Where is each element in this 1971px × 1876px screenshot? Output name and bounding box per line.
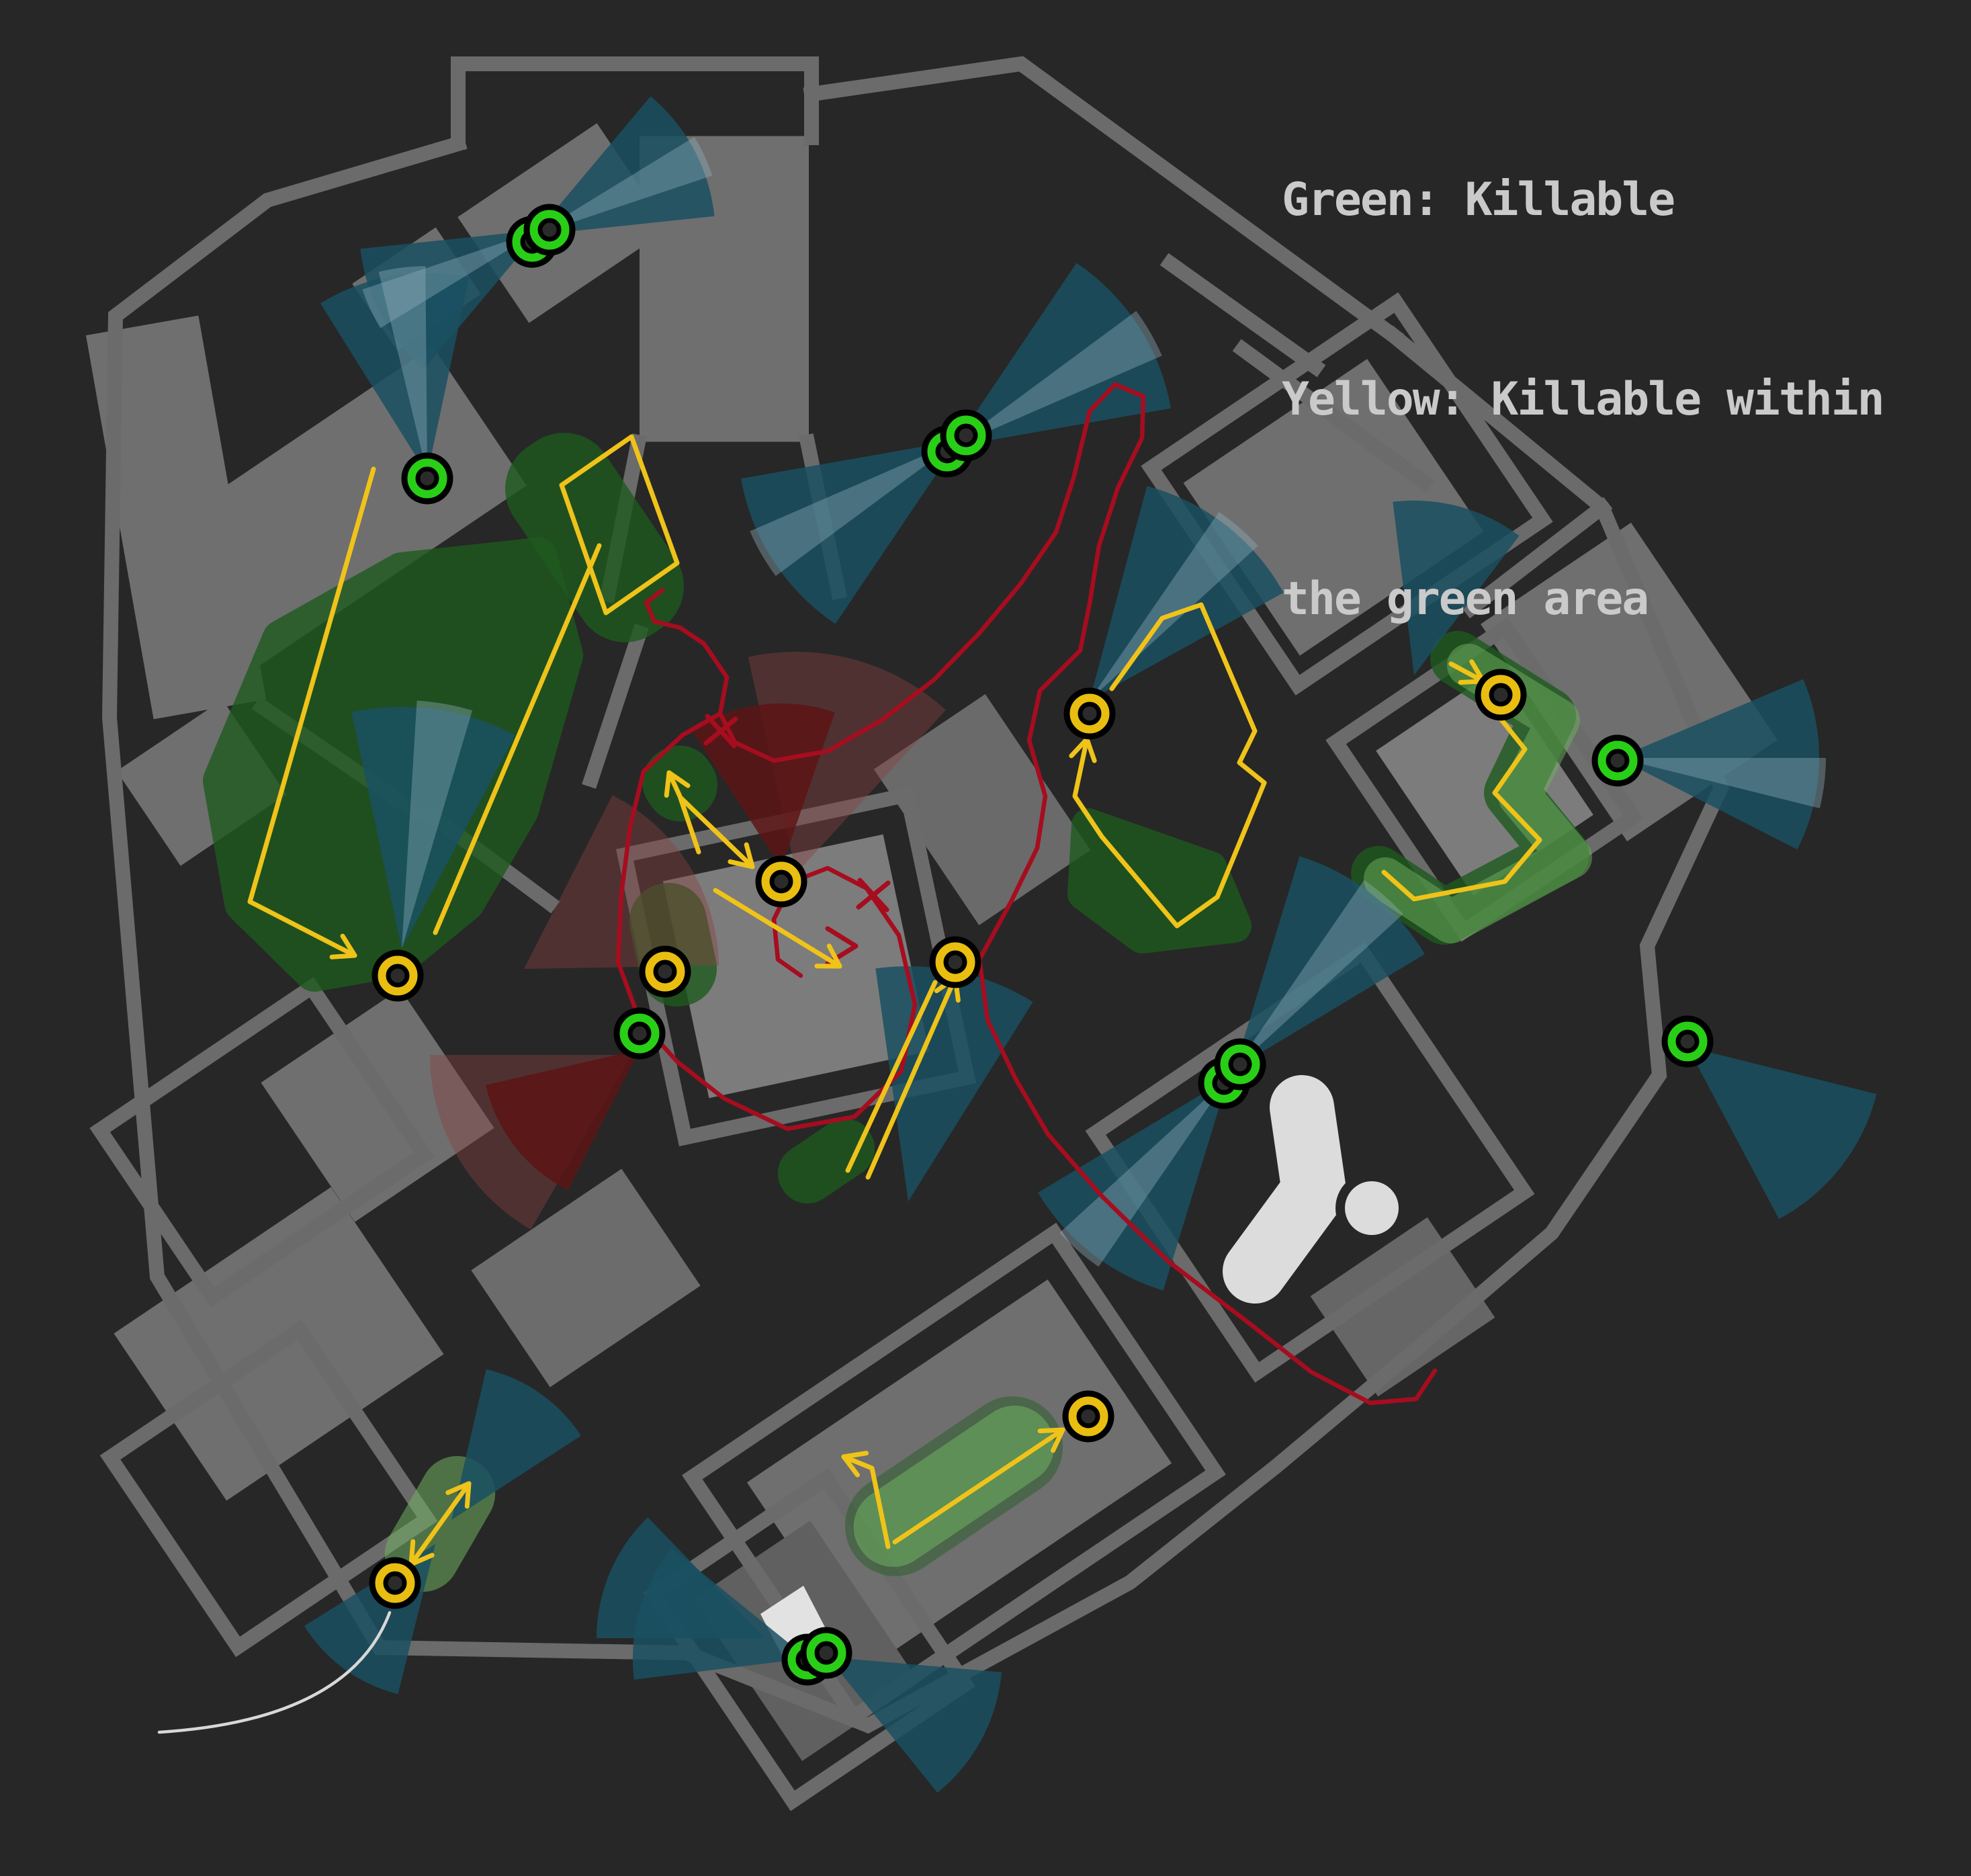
npc-marker-yellow[interactable] xyxy=(372,1560,418,1606)
patrol-arrowhead xyxy=(332,955,355,957)
npc-marker-hole xyxy=(1608,751,1627,770)
npc-marker-hole xyxy=(418,469,437,488)
legend-line-green-area: the green area xyxy=(1282,566,1884,632)
npc-marker-green[interactable] xyxy=(527,207,572,253)
vision-cone-teal xyxy=(451,1369,581,1520)
npc-marker-yellow[interactable] xyxy=(375,953,421,998)
npc-marker-hole xyxy=(540,220,559,239)
patrol-arrowhead xyxy=(467,1484,469,1506)
legend-line-green: Green: Killable xyxy=(1282,167,1884,233)
npc-marker-hole xyxy=(946,953,965,972)
white-boomerang-landmark xyxy=(1255,1107,1314,1271)
npc-marker-green[interactable] xyxy=(943,413,989,458)
npc-marker-hole xyxy=(1080,704,1099,723)
patrol-arrowhead xyxy=(411,1541,413,1564)
patrol-arrowhead xyxy=(666,773,669,796)
npc-marker-green[interactable] xyxy=(404,456,450,501)
npc-marker-green[interactable] xyxy=(1595,738,1640,783)
npc-marker-hole xyxy=(630,1024,649,1043)
npc-marker-hole xyxy=(656,962,674,981)
patrol-arrowhead xyxy=(1087,739,1094,761)
npc-marker-hole xyxy=(386,1574,404,1592)
npc-marker-yellow[interactable] xyxy=(758,859,804,904)
legend-line-yellow: Yellow: Killable within xyxy=(1282,366,1884,433)
npc-marker-green[interactable] xyxy=(1217,1041,1263,1087)
map-wall xyxy=(591,633,640,779)
warning-note-text: Wouldn’t recommend killing this guy, it’… xyxy=(24,1739,913,1876)
npc-marker-hole xyxy=(817,1644,836,1662)
patrol-arrowhead xyxy=(1040,1430,1063,1431)
npc-marker-hole xyxy=(1231,1055,1250,1074)
white-knob-landmark xyxy=(1345,1181,1399,1235)
npc-marker-yellow[interactable] xyxy=(1065,1394,1111,1439)
npc-marker-green[interactable] xyxy=(617,1011,662,1056)
npc-marker-hole xyxy=(957,426,975,445)
vision-cone-teal xyxy=(1688,1047,1876,1219)
npc-marker-hole xyxy=(1678,1032,1697,1051)
npc-marker-hole xyxy=(1079,1407,1098,1426)
legend-text: Green: Killable Yellow: Killable within … xyxy=(1282,34,1884,699)
npc-marker-yellow[interactable] xyxy=(642,949,688,994)
npc-marker-yellow[interactable] xyxy=(1067,691,1112,736)
npc-marker-hole xyxy=(772,872,791,891)
npc-marker-green[interactable] xyxy=(803,1630,849,1676)
npc-marker-hole xyxy=(388,966,407,985)
npc-marker-green[interactable] xyxy=(1665,1019,1710,1064)
note-line-1: Wouldn’t recommend killing xyxy=(24,1872,913,1876)
npc-marker-yellow[interactable] xyxy=(932,939,978,985)
vision-cone-teal xyxy=(875,966,1033,1201)
